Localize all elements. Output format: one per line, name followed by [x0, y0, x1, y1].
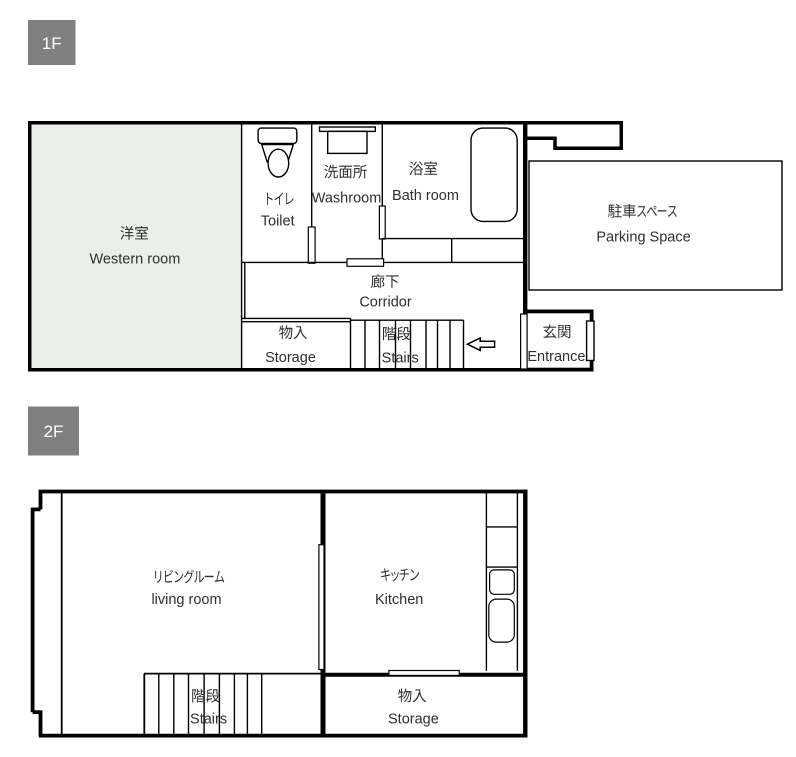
svg-text:2F: 2F: [44, 422, 64, 441]
svg-text:Toilet: Toilet: [261, 214, 295, 230]
svg-text:Parking Space: Parking Space: [596, 229, 690, 245]
svg-text:Storage: Storage: [265, 350, 316, 366]
svg-text:Kitchen: Kitchen: [375, 592, 423, 608]
svg-text:Stairs: Stairs: [382, 351, 419, 367]
svg-text:Corridor: Corridor: [359, 295, 412, 311]
svg-text:Storage: Storage: [388, 711, 439, 727]
svg-text:Washroom: Washroom: [312, 190, 382, 206]
svg-text:1F: 1F: [42, 34, 62, 53]
svg-text:Western room: Western room: [90, 251, 181, 267]
svg-text:Bath room: Bath room: [392, 188, 459, 204]
svg-text:Entrance: Entrance: [527, 349, 585, 365]
svg-text:living room: living room: [151, 592, 221, 608]
svg-text:Stairs: Stairs: [190, 711, 227, 727]
